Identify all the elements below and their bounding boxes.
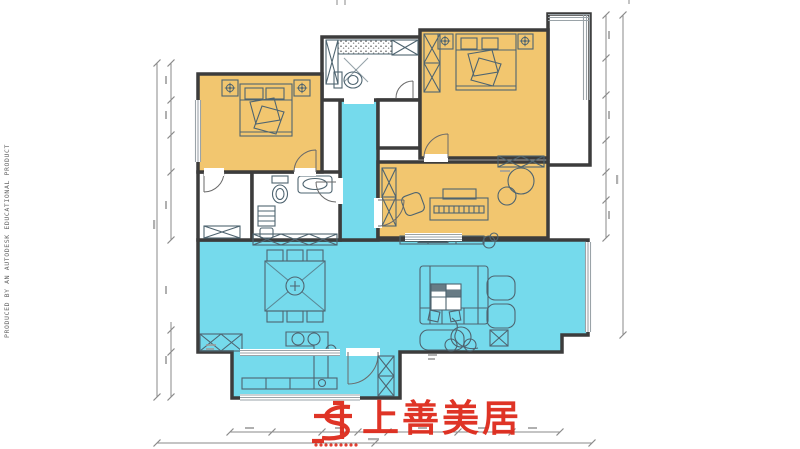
floorplan-image: PRODUCED BY AN AUTODESK EDUCATIONAL PROD… (0, 0, 800, 449)
hallway (340, 100, 378, 240)
brand-watermark-text: 上善美居 (362, 399, 522, 440)
bathroom-annex (378, 100, 420, 148)
vanity-counter (338, 40, 392, 54)
floorplan-canvas (0, 0, 800, 449)
closet-room (198, 172, 252, 240)
autodesk-plot-stamp: PRODUCED BY AN AUTODESK EDUCATIONAL PROD… (3, 144, 11, 338)
brand-logo-icon (312, 403, 352, 441)
brand-logo-dots (314, 443, 357, 446)
